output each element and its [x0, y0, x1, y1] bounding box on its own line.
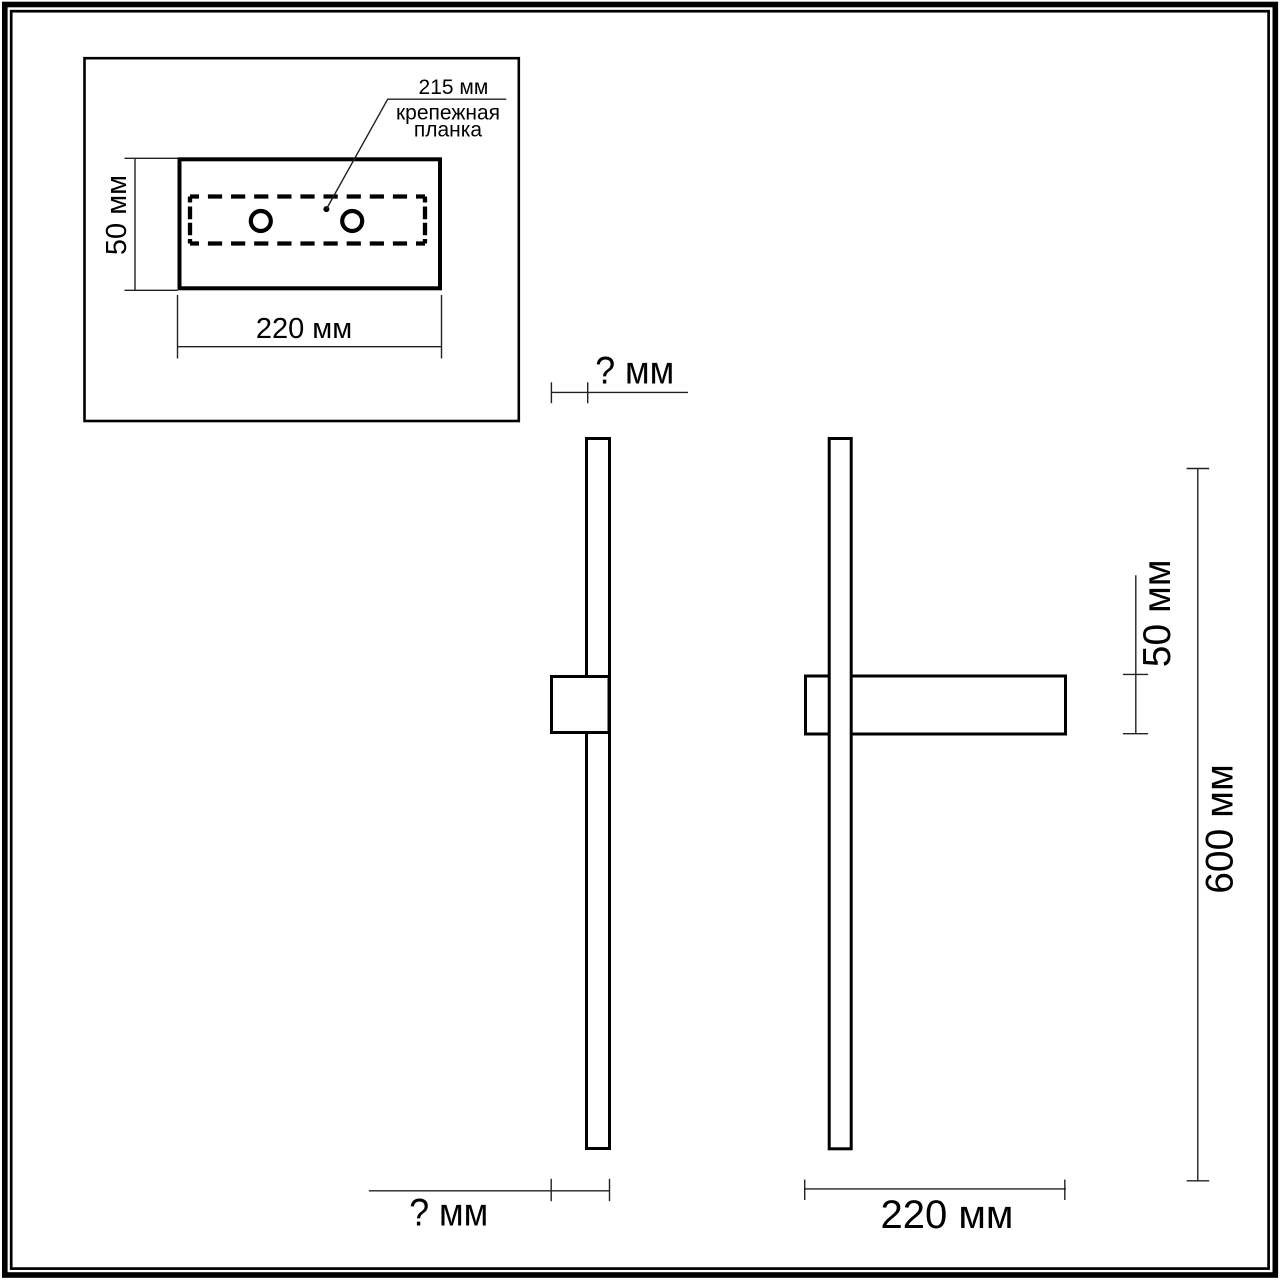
svg-text:215 мм: 215 мм [419, 76, 489, 99]
svg-text:220 мм: 220 мм [880, 1193, 1013, 1237]
svg-text:220 мм: 220 мм [256, 313, 352, 345]
svg-text:600 мм: 600 мм [1198, 764, 1241, 894]
svg-text:50 мм: 50 мм [1136, 559, 1179, 667]
svg-text:? мм: ? мм [595, 350, 674, 393]
svg-text:50 мм: 50 мм [101, 175, 133, 255]
svg-text:планка: планка [414, 119, 483, 142]
svg-text:? мм: ? мм [409, 1192, 488, 1235]
